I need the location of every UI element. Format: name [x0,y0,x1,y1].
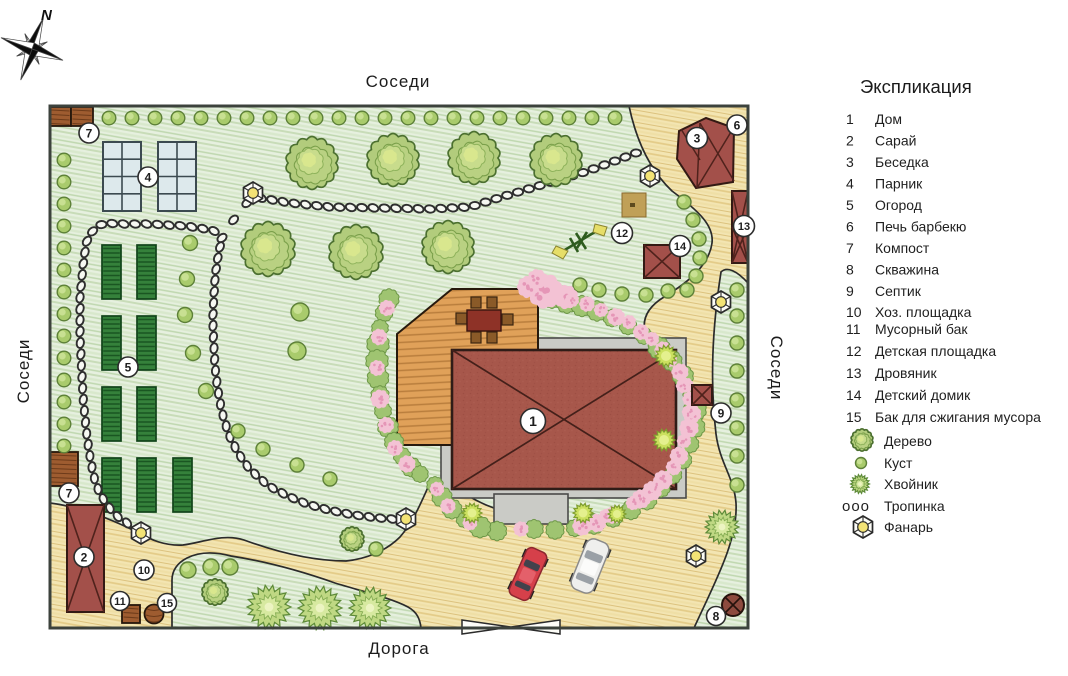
svg-text:2: 2 [81,550,88,564]
svg-text:12: 12 [846,343,862,359]
svg-text:3: 3 [846,154,854,170]
svg-text:Огород: Огород [875,197,922,213]
svg-text:Мусорный бак: Мусорный бак [875,321,968,337]
svg-text:8: 8 [846,262,854,278]
svg-text:13: 13 [738,221,750,233]
svg-text:Экспликация: Экспликация [860,76,972,97]
svg-text:13: 13 [846,365,862,381]
svg-text:12: 12 [616,228,628,240]
svg-text:Бак для сжигания мусора: Бак для сжигания мусора [875,409,1041,425]
svg-text:Скважина: Скважина [875,262,939,278]
svg-text:1: 1 [846,111,854,127]
svg-text:10: 10 [138,565,150,577]
svg-text:10: 10 [846,304,862,320]
svg-text:1: 1 [529,413,537,429]
svg-text:9: 9 [718,406,725,420]
svg-text:4: 4 [145,170,152,184]
svg-text:3: 3 [694,131,701,145]
svg-text:Септик: Септик [875,283,922,299]
svg-text:Соседи: Соседи [366,72,431,91]
svg-text:ооо: ооо [842,498,870,515]
svg-text:7: 7 [86,126,93,140]
svg-text:7: 7 [66,486,73,500]
svg-text:Соседи: Соседи [767,336,786,401]
svg-text:Печь барбекю: Печь барбекю [875,219,966,235]
svg-text:Беседка: Беседка [875,154,929,170]
svg-text:8: 8 [713,609,720,623]
svg-text:N: N [41,7,53,24]
svg-text:2: 2 [846,133,854,149]
svg-text:14: 14 [846,387,862,403]
svg-text:Фанарь: Фанарь [884,519,933,535]
svg-text:5: 5 [125,360,132,374]
svg-text:Сарай: Сарай [875,133,916,149]
svg-text:Дорога: Дорога [368,639,429,658]
svg-text:Хвойник: Хвойник [884,476,939,492]
svg-text:Хоз. площадка: Хоз. площадка [875,304,972,320]
svg-text:11: 11 [114,596,126,608]
svg-text:6: 6 [846,219,854,235]
svg-text:Дом: Дом [875,111,902,127]
svg-text:7: 7 [846,240,854,256]
svg-text:Детский домик: Детский домик [875,387,971,403]
svg-text:11: 11 [846,321,861,337]
svg-text:15: 15 [846,409,862,425]
svg-text:Тропинка: Тропинка [884,498,945,514]
svg-text:14: 14 [674,241,687,253]
svg-text:9: 9 [846,283,854,299]
svg-text:Соседи: Соседи [14,339,33,404]
svg-text:Куст: Куст [884,455,913,471]
svg-text:Дерево: Дерево [884,433,932,449]
svg-text:Парник: Парник [875,176,923,192]
svg-text:Детская площадка: Детская площадка [875,343,996,359]
svg-text:15: 15 [161,598,173,610]
svg-text:5: 5 [846,197,854,213]
svg-text:4: 4 [846,176,854,192]
svg-text:6: 6 [734,118,741,132]
svg-text:Компост: Компост [875,240,930,256]
svg-text:Дровяник: Дровяник [875,365,937,381]
